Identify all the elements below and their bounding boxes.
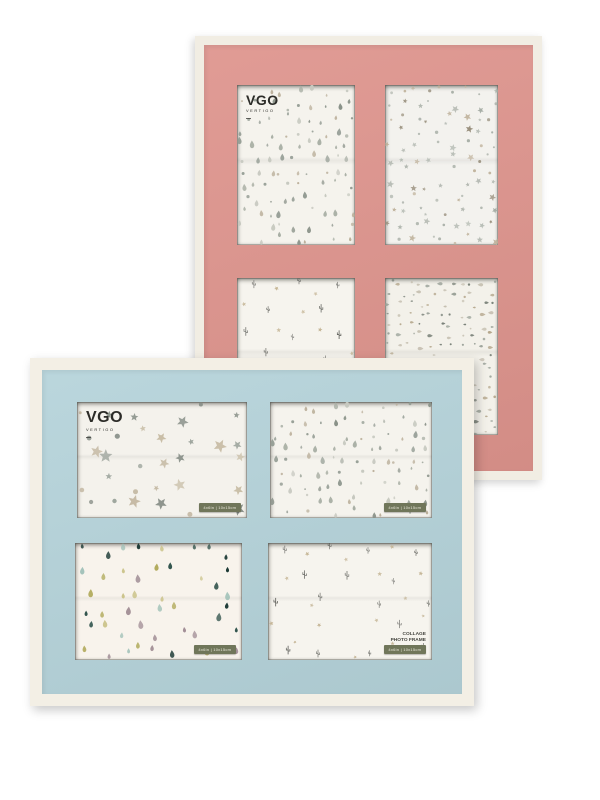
logo-underline: [246, 118, 251, 119]
photo-opening-raindrops: VGO VERTIGO: [237, 85, 355, 245]
vgo-logo: VGO VERTIGO: [86, 410, 143, 438]
size-badge: 4x6in | 10x15cm: [199, 503, 241, 512]
size-badge-text: 4x6in | 10x15cm: [389, 505, 422, 510]
photo-opening-raindrops: 4x6in | 10x15cm: [270, 402, 432, 518]
collage-label-line2: PHOTO FRAME: [391, 637, 426, 643]
size-badge: 4x6in | 10x15cm: [384, 645, 426, 654]
vgo-logo-subtext: VERTIGO: [86, 428, 114, 432]
size-badge: 4x6in | 10x15cm: [194, 645, 236, 654]
photo-opening-colored-raindrops: 4x6in | 10x15cm: [75, 543, 242, 660]
size-badge-text: 4x6in | 10x15cm: [199, 647, 232, 652]
photo-opening-stars: VGO VERTIGO 4x6in | 10x15cm: [77, 402, 247, 518]
size-badge-text: 4x6in | 10x15cm: [389, 647, 422, 652]
photo-opening-stars: [385, 85, 498, 245]
logo-underline: [86, 437, 91, 438]
size-badge: 4x6in | 10x15cm: [384, 503, 426, 512]
size-badge-text: 4x6in | 10x15cm: [204, 505, 237, 510]
vgo-logo-subtext: VERTIGO: [246, 109, 274, 113]
collage-photo-frame-label: COLLAGE PHOTO FRAME: [391, 631, 426, 643]
blue-collage-frame: VGO VERTIGO 4x6in | 10x15cm 4x6in | 10x1…: [30, 358, 474, 706]
vgo-logo-text: VGO: [86, 410, 143, 426]
vgo-logo: VGO VERTIGO: [246, 93, 303, 119]
product-photo: VGO VERTIGO VGO VERTIGO 4x6in | 10x15cm …: [0, 0, 600, 800]
photo-opening-cactus-stars: COLLAGE PHOTO FRAME 4x6in | 10x15cm: [268, 543, 432, 660]
vgo-logo-text: VGO: [246, 93, 303, 107]
